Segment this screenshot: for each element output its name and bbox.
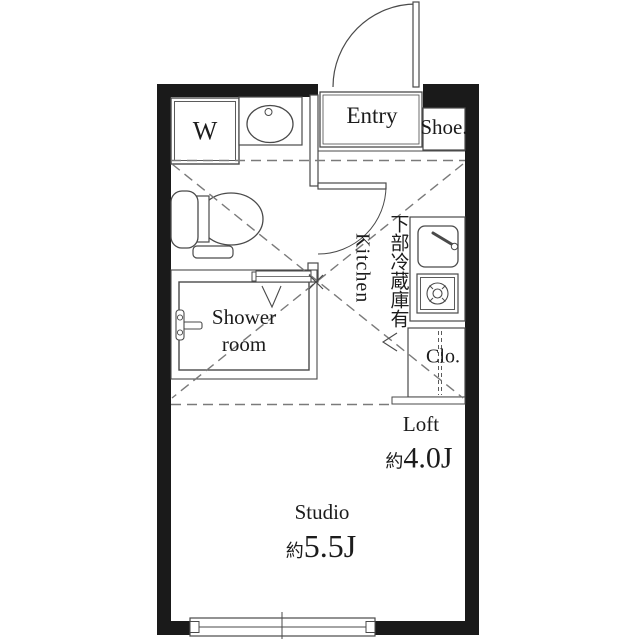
studio-size: 約5.5J bbox=[286, 530, 356, 564]
shower-room-label: Shower room bbox=[212, 304, 276, 358]
entry-label: Entry bbox=[346, 104, 397, 128]
interior-walls bbox=[308, 95, 318, 282]
studio-size-value: 5.5J bbox=[304, 528, 356, 564]
loft-size: 約4.0J bbox=[385, 442, 452, 474]
kitchen-label: Kitchen bbox=[351, 233, 374, 303]
shoe-closet-label: Shoe. bbox=[420, 116, 467, 138]
floorplan: W Entry Shoe. Kitchen 下部冷蔵庫有 Shower room… bbox=[0, 0, 640, 639]
shower-label-line1: Shower bbox=[212, 304, 276, 331]
studio-label: Studio bbox=[295, 501, 350, 523]
loft-label: Loft bbox=[403, 413, 439, 435]
studio-size-prefix: 約 bbox=[286, 541, 304, 561]
kitchen-sink-icon bbox=[418, 226, 458, 267]
washbasin-icon bbox=[239, 97, 302, 145]
washer-label: W bbox=[193, 117, 218, 144]
stove-icon bbox=[417, 274, 458, 313]
closet-label: Clo. bbox=[426, 347, 460, 368]
loft-size-prefix: 約 bbox=[385, 451, 403, 471]
kitchen-note-label: 下部冷蔵庫有 bbox=[385, 214, 412, 328]
loft-size-value: 4.0J bbox=[403, 441, 452, 474]
toilet-icon bbox=[171, 191, 263, 258]
shower-label-line2: room bbox=[212, 331, 276, 358]
entry-door-swing bbox=[333, 2, 419, 87]
window-icon bbox=[190, 612, 375, 639]
